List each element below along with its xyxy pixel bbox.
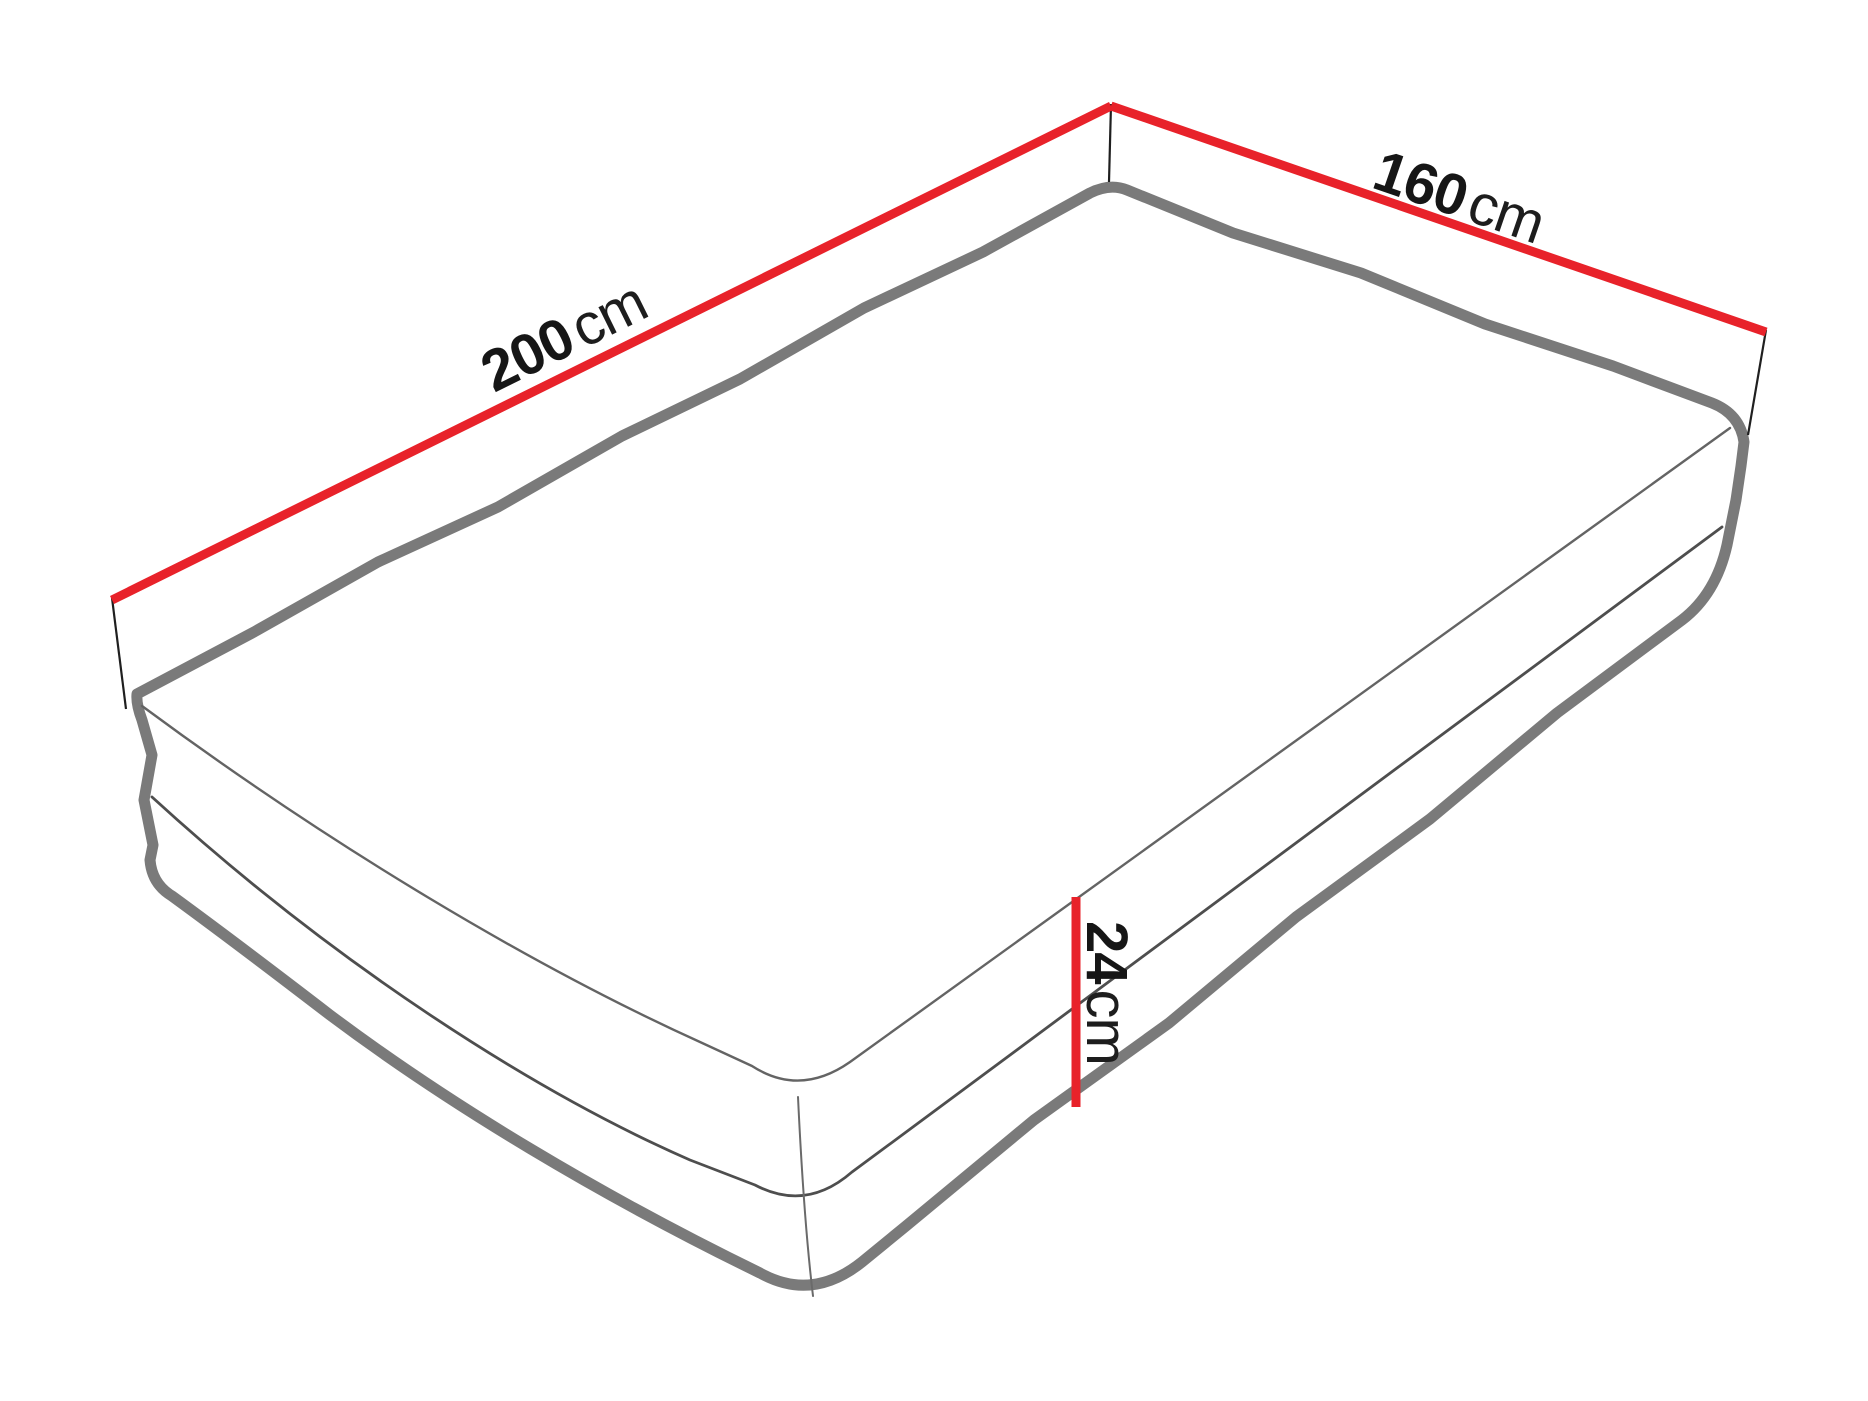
width-value: 160 (1366, 138, 1476, 230)
length-unit: cm (560, 269, 656, 361)
diagram-svg: 200 cm 160 cm 24 cm (0, 0, 1868, 1401)
length-dimension-line (112, 106, 1111, 600)
extension-line-apex (1109, 104, 1111, 182)
width-dimension-label: 160 cm (1366, 138, 1553, 256)
mattress-outline (137, 187, 1744, 1285)
extension-line-right (1748, 330, 1766, 435)
width-unit: cm (1460, 170, 1552, 256)
height-value: 24 (1074, 921, 1139, 984)
mattress-side-seam-line (152, 527, 1722, 1196)
length-value: 200 (471, 305, 584, 405)
height-dimension-label: 24 cm (1074, 921, 1139, 1065)
length-dimension-label: 200 cm (471, 269, 657, 405)
extension-line-left (112, 598, 126, 709)
mattress-top-edge-line (142, 428, 1730, 1081)
mattress-dimension-diagram: 200 cm 160 cm 24 cm (0, 0, 1868, 1401)
height-unit: cm (1074, 990, 1139, 1065)
